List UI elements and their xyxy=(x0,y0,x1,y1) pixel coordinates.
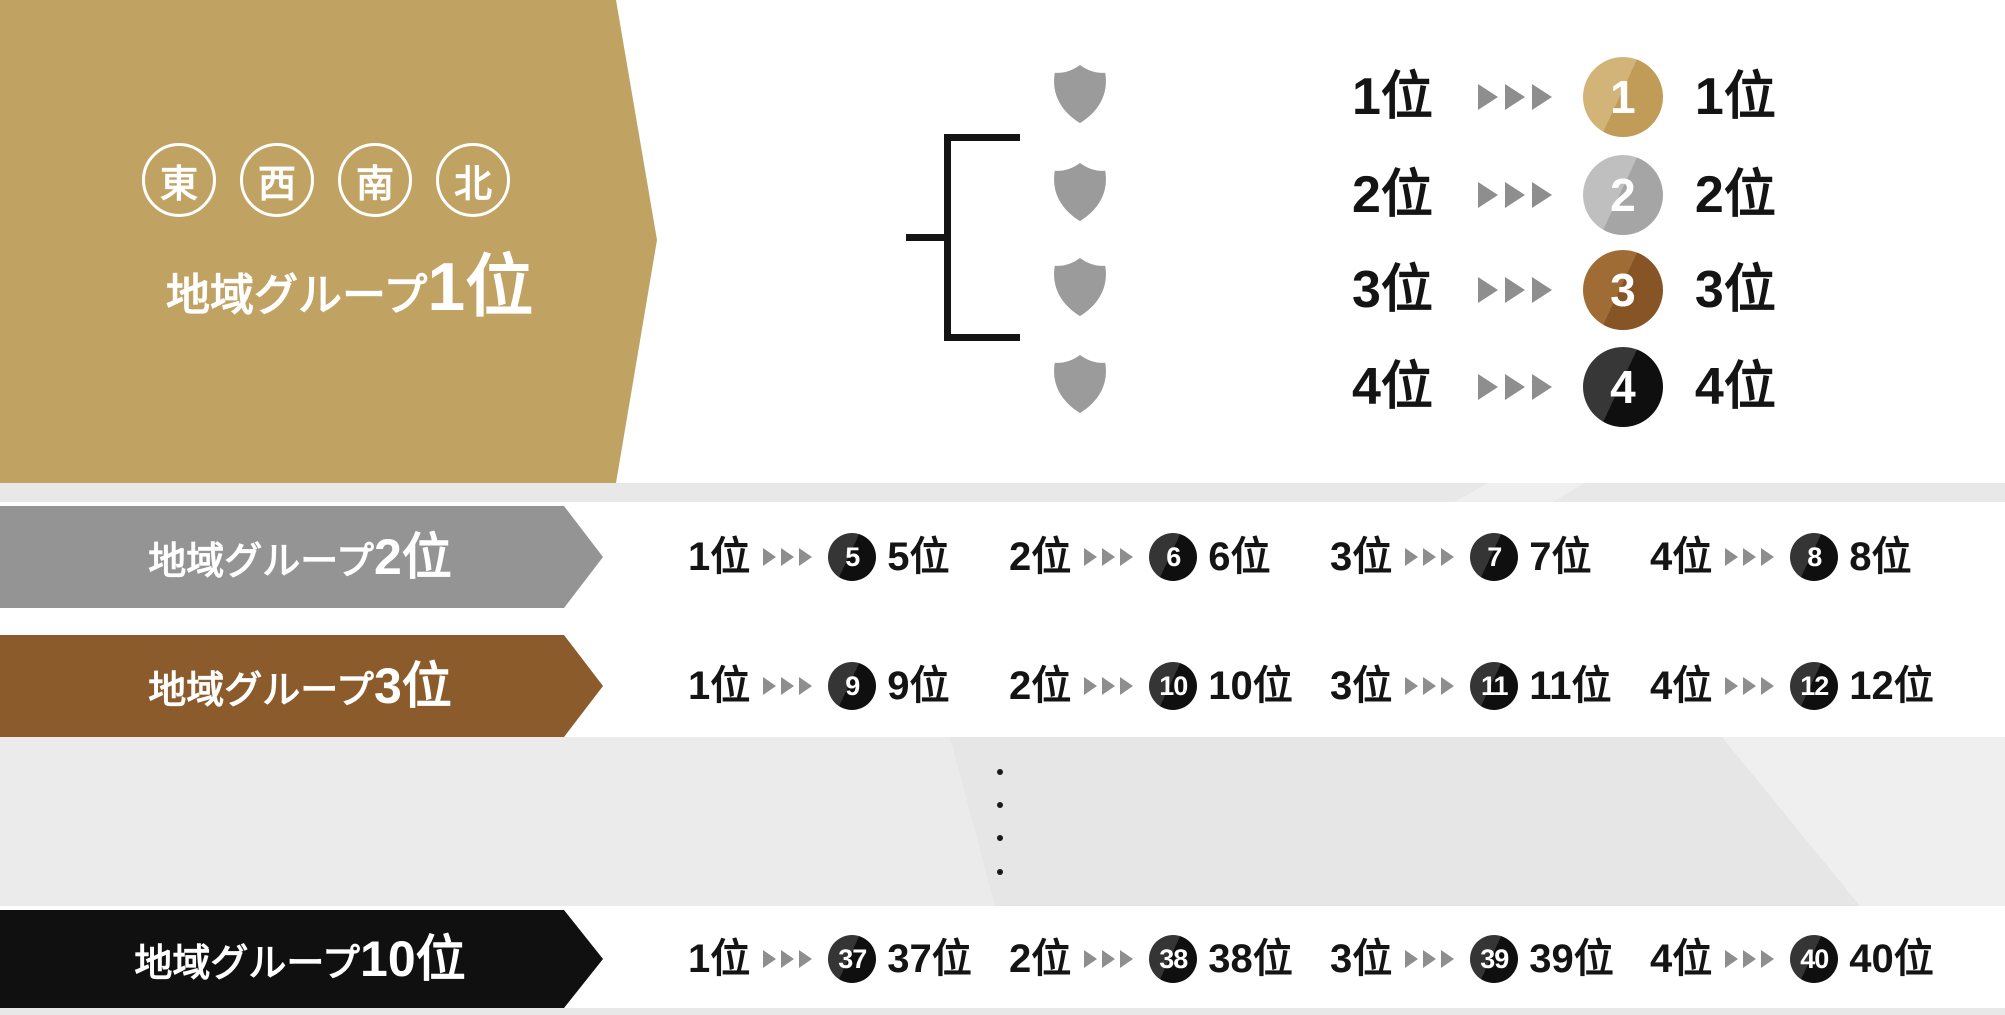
triple-arrow-icon xyxy=(1725,677,1777,695)
bracket-bottom-arm xyxy=(944,334,1020,341)
triple-arrow-icon xyxy=(763,950,815,968)
group-rank-label: 3位 xyxy=(1330,939,1392,979)
triple-arrow-icon xyxy=(1084,950,1136,968)
group-rank-label: 4位 xyxy=(1650,939,1712,979)
overall-rank-label: 4位 xyxy=(1695,361,1776,413)
region-circle-south: 南 xyxy=(338,143,412,217)
group10-banner: 地域グループ10位 xyxy=(0,910,603,1008)
group3-banner: 地域グループ3位 xyxy=(0,635,603,737)
overall-rank-label: 5位 xyxy=(887,537,949,577)
promotion-item: 1位 9 9位 xyxy=(688,635,950,737)
promotion-item: 2位 10 10位 xyxy=(1009,635,1293,737)
group-rank-label: 3位 xyxy=(1352,264,1433,316)
promotion-item: 3位 39 39位 xyxy=(1330,910,1614,1008)
overall-rank-label: 39位 xyxy=(1529,939,1614,979)
seed-number-badge-black: 4 xyxy=(1583,347,1663,427)
group-rank-label: 1位 xyxy=(688,537,750,577)
banner-label-prefix: 地域グループ xyxy=(148,672,374,710)
seed-number-badge: 5 xyxy=(828,533,876,581)
team-shield-icon xyxy=(1049,352,1111,416)
seed-number-badge: 6 xyxy=(1149,533,1197,581)
region-circle-west: 西 xyxy=(240,143,314,217)
triple-arrow-icon xyxy=(1725,950,1777,968)
overall-rank-label: 12位 xyxy=(1849,666,1934,706)
overall-rank-label: 38位 xyxy=(1208,939,1293,979)
overall-rank-label: 3位 xyxy=(1695,264,1776,316)
ellipsis-dot xyxy=(997,835,1003,841)
triple-arrow-icon xyxy=(1725,548,1777,566)
seed-number-badge-bronze: 3 xyxy=(1583,250,1663,330)
group-rank-label: 4位 xyxy=(1352,361,1433,413)
region-circles: 東 西 南 北 xyxy=(142,143,510,217)
ellipsis-dot xyxy=(997,869,1003,875)
group-rank-label: 1位 xyxy=(688,666,750,706)
promotion-item: 2位 6 6位 xyxy=(1009,506,1271,608)
triple-arrow-icon xyxy=(1478,374,1555,400)
banner-label-rank: 10位 xyxy=(360,934,466,984)
promotion-item: 2位 38 38位 xyxy=(1009,910,1293,1008)
seed-number-badge: 38 xyxy=(1149,935,1197,983)
banner-label-rank: 3位 xyxy=(374,661,452,711)
seed-number-badge: 39 xyxy=(1470,935,1518,983)
seed-number-badge: 10 xyxy=(1149,662,1197,710)
overall-rank-label: 9位 xyxy=(887,666,949,706)
seed-number-badge-silver: 2 xyxy=(1583,155,1663,235)
separator-band-top xyxy=(0,483,2005,502)
bracket-top-arm xyxy=(944,134,1020,141)
seed-number-badge-gold: 1 xyxy=(1583,57,1663,137)
promotion-item: 1位 37 37位 xyxy=(688,910,972,1008)
seed-number-badge: 40 xyxy=(1790,935,1838,983)
triple-arrow-icon xyxy=(763,677,815,695)
group-rank-label: 1位 xyxy=(1352,71,1433,123)
group1-banner-title: 地域グループ1位 xyxy=(166,253,533,321)
triple-arrow-icon xyxy=(763,548,815,566)
team-shield-icon xyxy=(1049,255,1111,319)
group-rank-label: 2位 xyxy=(1352,169,1433,221)
result-row-2: 2位 2 2位 xyxy=(1352,150,1776,240)
banner-label: 地域グループ3位 xyxy=(0,661,564,711)
promotion-item: 3位 11 11位 xyxy=(1330,635,1612,737)
banner-label: 地域グループ2位 xyxy=(0,532,564,582)
region-circle-east: 東 xyxy=(142,143,216,217)
promotion-item: 1位 5 5位 xyxy=(688,506,950,608)
group1-banner xyxy=(0,0,663,483)
group-rank-label: 3位 xyxy=(1330,537,1392,577)
group-rank-label: 2位 xyxy=(1009,537,1071,577)
banner-label-prefix: 地域グループ xyxy=(148,543,374,581)
overall-rank-label: 8位 xyxy=(1849,537,1911,577)
group2-banner: 地域グループ2位 xyxy=(0,506,603,608)
result-row-4: 4位 4 4位 xyxy=(1352,342,1776,432)
overall-rank-label: 10位 xyxy=(1208,666,1293,706)
group-rank-label: 4位 xyxy=(1650,666,1712,706)
banner-label-prefix: 地域グループ xyxy=(134,945,360,983)
group-rank-label: 2位 xyxy=(1009,666,1071,706)
triple-arrow-icon xyxy=(1405,677,1457,695)
seed-number-badge: 9 xyxy=(828,662,876,710)
separator-band-bottom xyxy=(0,1008,2005,1015)
overall-rank-label: 6位 xyxy=(1208,537,1270,577)
promotion-item: 4位 12 12位 xyxy=(1650,635,1934,737)
triple-arrow-icon xyxy=(1478,277,1555,303)
seed-number-badge: 11 xyxy=(1470,662,1518,710)
triple-arrow-icon xyxy=(1405,548,1457,566)
team-shield-icon xyxy=(1049,160,1111,224)
team-shield-icon xyxy=(1049,62,1111,126)
group-rank-label: 3位 xyxy=(1330,666,1392,706)
group-rank-label: 1位 xyxy=(688,939,750,979)
result-row-3: 3位 3 3位 xyxy=(1352,245,1776,335)
group-rank-label: 2位 xyxy=(1009,939,1071,979)
group2-row: 地域グループ2位 1位 5 5位 2位 6 6位 3位 7 7位 4位 8 8位 xyxy=(0,506,2005,608)
promotion-item: 4位 40 40位 xyxy=(1650,910,1934,1008)
seed-number-badge: 7 xyxy=(1470,533,1518,581)
triple-arrow-icon xyxy=(1405,950,1457,968)
triple-arrow-icon xyxy=(1478,84,1555,110)
overall-rank-label: 2位 xyxy=(1695,169,1776,221)
seed-number-badge: 8 xyxy=(1790,533,1838,581)
overall-rank-label: 11位 xyxy=(1529,666,1611,706)
result-row-1: 1位 1 1位 xyxy=(1352,52,1776,142)
ellipsis-band-decoration-left xyxy=(0,737,995,906)
promotion-item: 4位 8 8位 xyxy=(1650,506,1912,608)
ellipsis-dot xyxy=(997,802,1003,808)
banner-label: 地域グループ10位 xyxy=(0,934,564,984)
promotion-diagram: 東 西 南 北 地域グループ1位 1位 1 1位 2位 2 2位 3位 3 3位… xyxy=(0,0,2005,1015)
banner-label-rank: 2位 xyxy=(374,532,452,582)
group3-row: 地域グループ3位 1位 9 9位 2位 10 10位 3位 11 11位 4位 … xyxy=(0,635,2005,737)
seed-number-badge: 12 xyxy=(1790,662,1838,710)
overall-rank-label: 37位 xyxy=(887,939,972,979)
banner-title-rank: 1位 xyxy=(427,253,533,321)
seed-number-badge: 37 xyxy=(828,935,876,983)
bracket-vertical-line xyxy=(944,134,951,341)
promotion-item: 3位 7 7位 xyxy=(1330,506,1592,608)
banner-title-prefix: 地域グループ xyxy=(166,274,427,318)
group-rank-label: 4位 xyxy=(1650,537,1712,577)
region-circle-north: 北 xyxy=(436,143,510,217)
triple-arrow-icon xyxy=(1084,677,1136,695)
overall-rank-label: 1位 xyxy=(1695,71,1776,123)
group10-row: 地域グループ10位 1位 37 37位 2位 38 38位 3位 39 39位 … xyxy=(0,910,2005,1008)
triple-arrow-icon xyxy=(1478,182,1555,208)
bracket-stub-line xyxy=(906,234,944,241)
overall-rank-label: 40位 xyxy=(1849,939,1934,979)
overall-rank-label: 7位 xyxy=(1529,537,1591,577)
triple-arrow-icon xyxy=(1084,548,1136,566)
ellipsis-dot xyxy=(997,769,1003,775)
